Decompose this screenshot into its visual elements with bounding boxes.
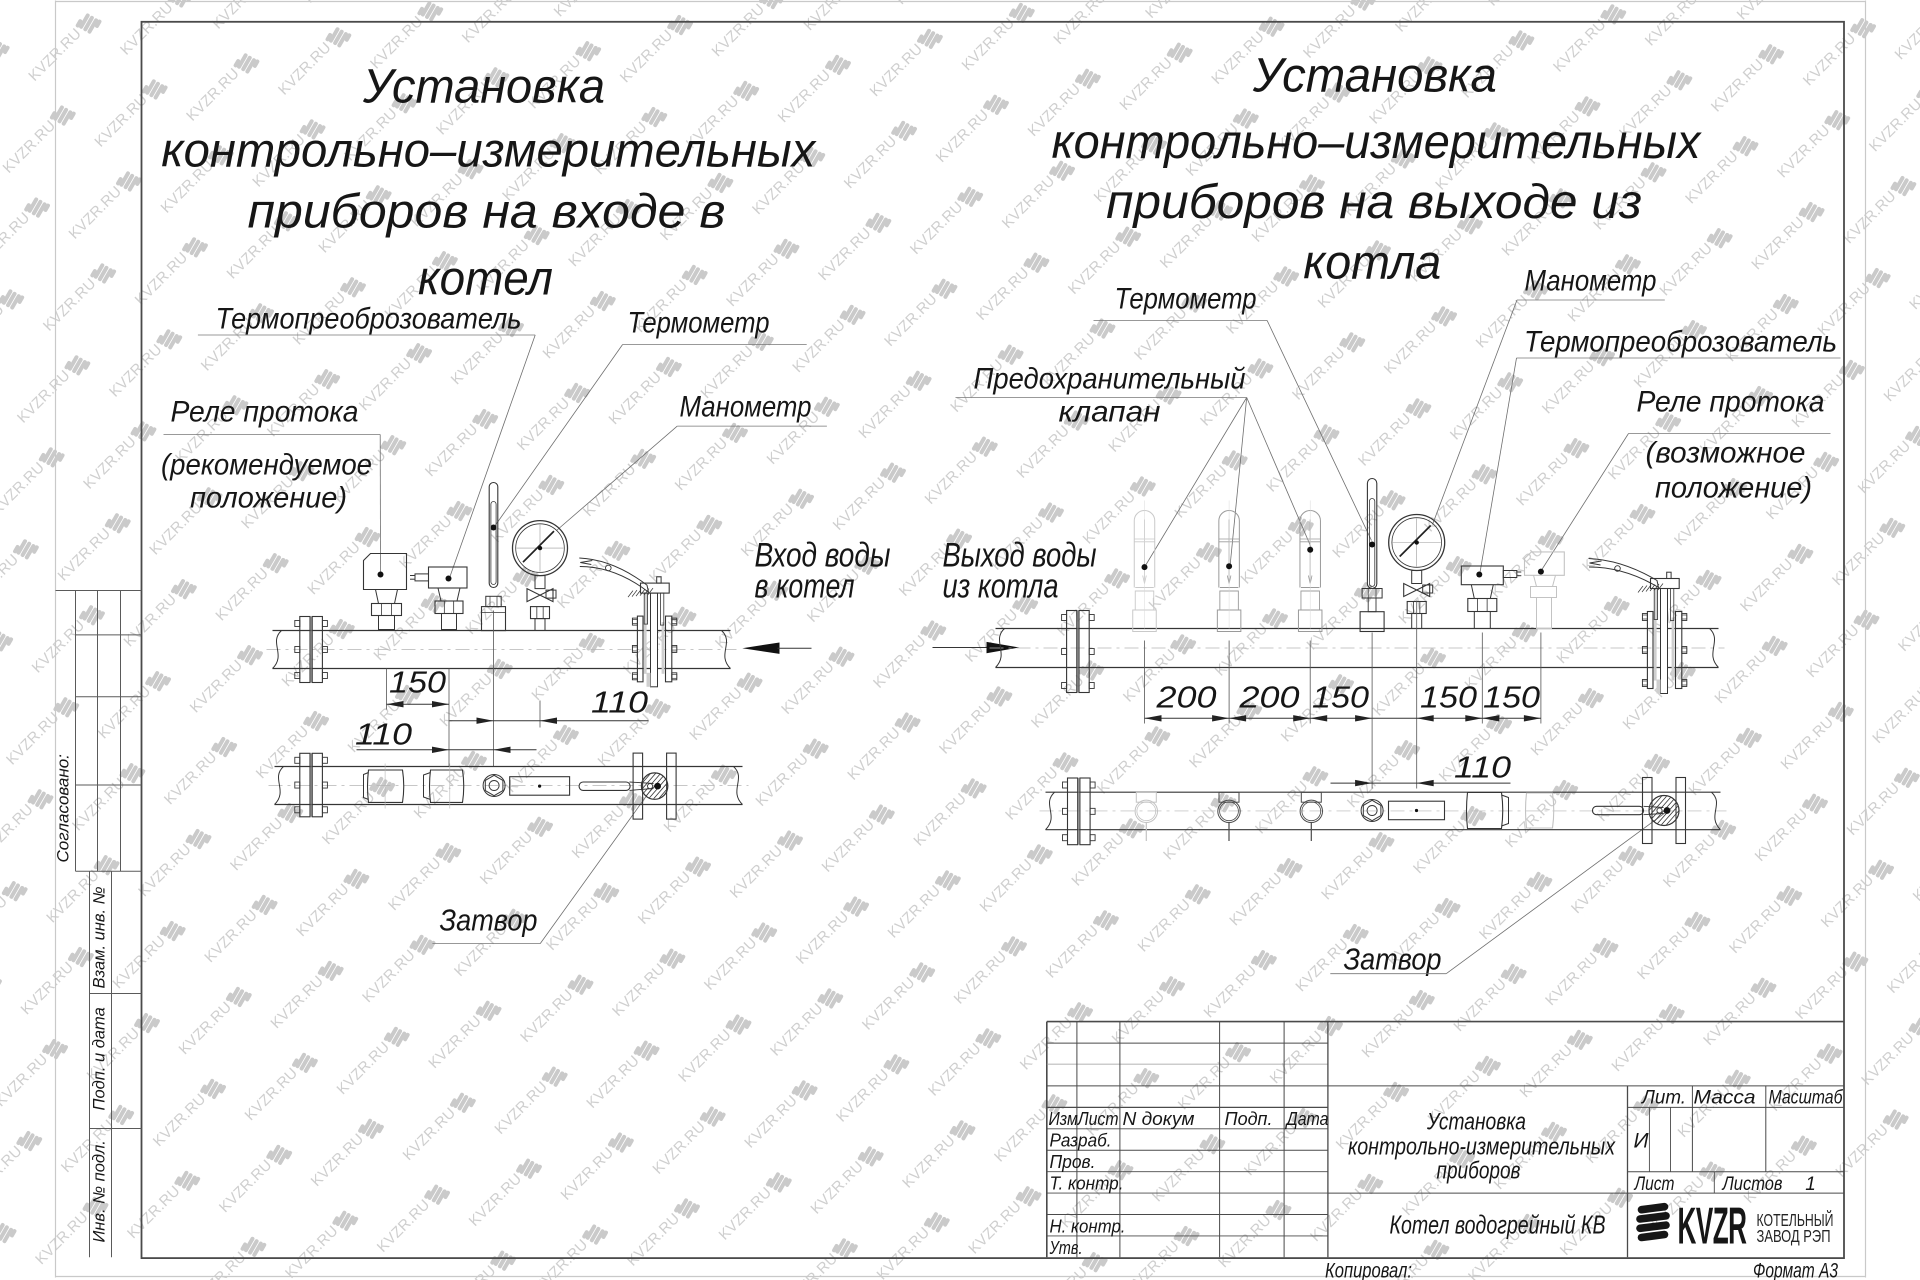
svg-text:Формат А3: Формат А3 [1753,1260,1838,1280]
svg-text:110: 110 [355,717,412,752]
svg-text:приборов на выходе из: приборов на выходе из [1106,176,1642,229]
svg-text:Взам. инв. №: Взам. инв. № [91,886,109,988]
svg-text:Согласовано:: Согласовано: [54,754,73,863]
svg-text:Манометр: Манометр [680,391,812,424]
svg-text:котел: котел [418,253,553,306]
svg-text:Дата: Дата [1285,1109,1329,1129]
svg-text:Реле протока: Реле протока [1637,386,1825,419]
svg-text:1: 1 [1805,1174,1816,1195]
svg-text:приборов: приборов [1437,1158,1521,1185]
svg-text:положение): положение) [1655,472,1812,505]
svg-text:Лит.: Лит. [1640,1088,1686,1109]
svg-text:Разраб.: Разраб. [1050,1131,1112,1151]
svg-text:110: 110 [1454,750,1511,785]
svg-text:200: 200 [1155,680,1216,715]
svg-text:Котел водогрейный КВ: Котел водогрейный КВ [1390,1210,1606,1240]
svg-text:Установка: Установка [1426,1109,1526,1136]
svg-text:Н. контр.: Н. контр. [1050,1217,1126,1237]
svg-text:Термопреоброзователь: Термопреоброзователь [216,303,522,336]
svg-text:из котла: из котла [943,568,1059,606]
svg-text:приборов на входе в: приборов на входе в [248,186,726,239]
svg-text:150: 150 [1483,680,1540,715]
svg-text:Копировал:: Копировал: [1325,1260,1412,1280]
svg-text:(рекомендуемое: (рекомендуемое [161,449,372,482]
svg-text:контрольно-измерительных: контрольно-измерительных [1348,1134,1616,1161]
svg-text:положение): положение) [190,482,347,515]
svg-text:150: 150 [389,665,446,700]
svg-text:контрольно–измерительных: контрольно–измерительных [161,125,817,178]
svg-text:N докум: N докум [1123,1109,1195,1129]
svg-text:Масса: Масса [1694,1088,1756,1109]
svg-text:110: 110 [591,685,648,720]
svg-text:150: 150 [1312,680,1369,715]
svg-text:Листов: Листов [1721,1174,1783,1195]
svg-text:Термометр: Термометр [1115,283,1257,316]
svg-text:Утв.: Утв. [1049,1238,1083,1258]
svg-text:Лист: Лист [1633,1174,1675,1195]
svg-text:(возможное: (возможное [1646,437,1806,470]
svg-text:200: 200 [1238,680,1299,715]
svg-text:Т. контр.: Т. контр. [1050,1174,1124,1194]
svg-text:Термопреоброзователь: Термопреоброзователь [1524,326,1837,359]
svg-text:Термометр: Термометр [628,307,770,340]
svg-text:Масштаб: Масштаб [1769,1088,1844,1109]
svg-text:Манометр: Манометр [1525,265,1657,298]
svg-text:Реле протока: Реле протока [171,396,359,429]
svg-text:в котел: в котел [755,568,855,606]
svg-text:ЗАВОД РЭП: ЗАВОД РЭП [1757,1226,1831,1246]
svg-text:ИзмЛист: ИзмЛист [1049,1109,1119,1129]
svg-text:150: 150 [1420,680,1477,715]
svg-text:Затвор: Затвор [440,903,538,938]
svg-text:Подп.: Подп. [1225,1109,1273,1129]
svg-text:Затвор: Затвор [1344,942,1442,977]
svg-text:Установка: Установка [362,61,605,114]
svg-text:KVZR: KVZR [1678,1198,1747,1256]
svg-text:Подп. и дата: Подп. и дата [91,1007,109,1110]
svg-text:Инв. № подл.: Инв. № подл. [91,1140,109,1242]
svg-text:контрольно–измерительных: контрольно–измерительных [1052,116,1703,169]
svg-text:котла: котла [1303,237,1441,290]
svg-text:И: И [1634,1130,1650,1153]
svg-text:Пров.: Пров. [1050,1152,1096,1172]
svg-text:клапан: клапан [1059,396,1161,429]
svg-text:Установка: Установка [1252,50,1497,103]
svg-text:Предохранительный: Предохранительный [974,363,1246,396]
